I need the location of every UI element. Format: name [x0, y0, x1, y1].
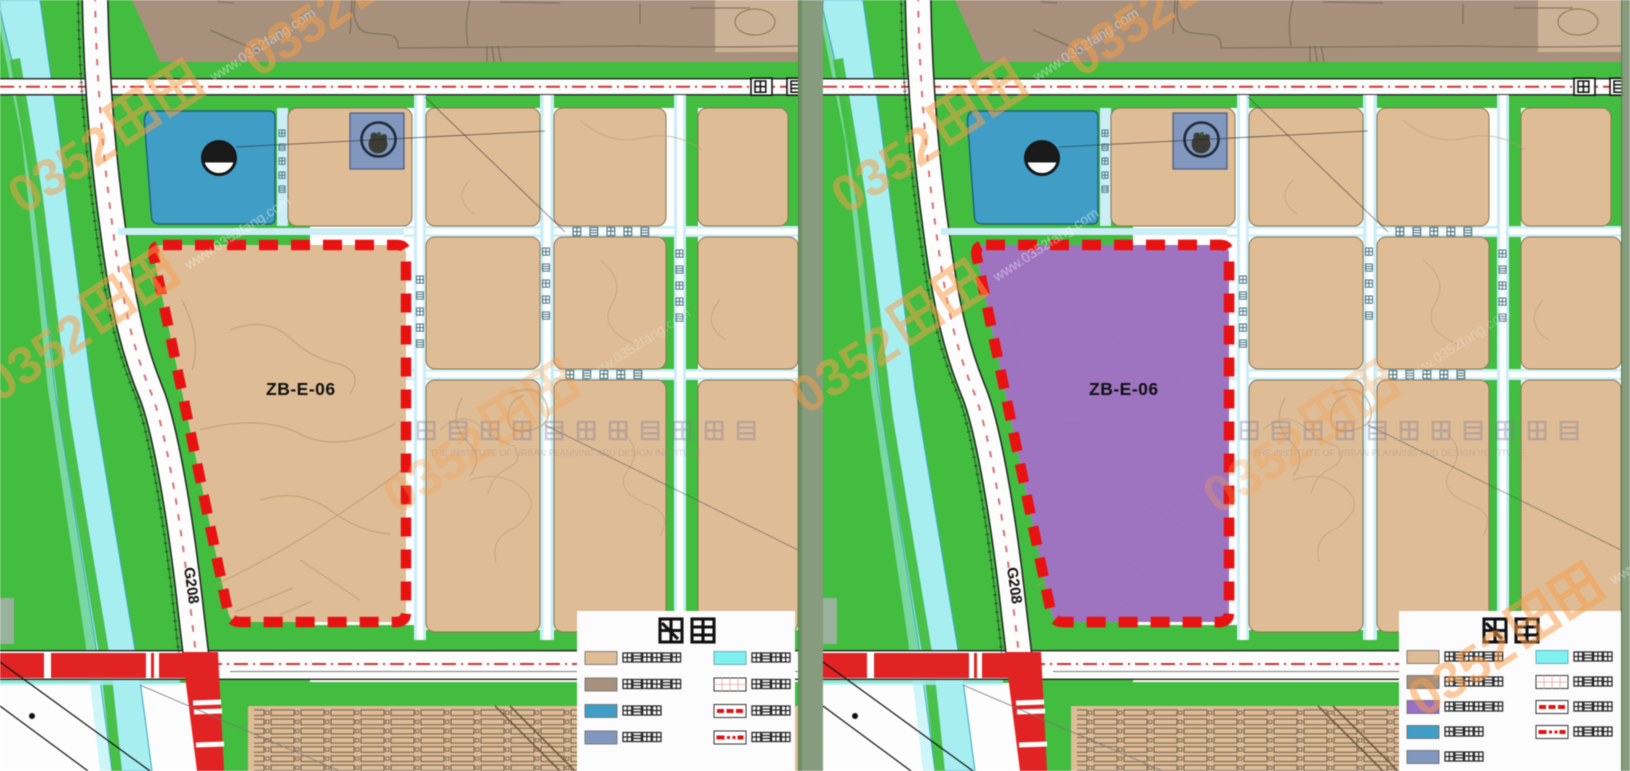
- svg-text:ZB-E-06: ZB-E-06: [1089, 379, 1159, 399]
